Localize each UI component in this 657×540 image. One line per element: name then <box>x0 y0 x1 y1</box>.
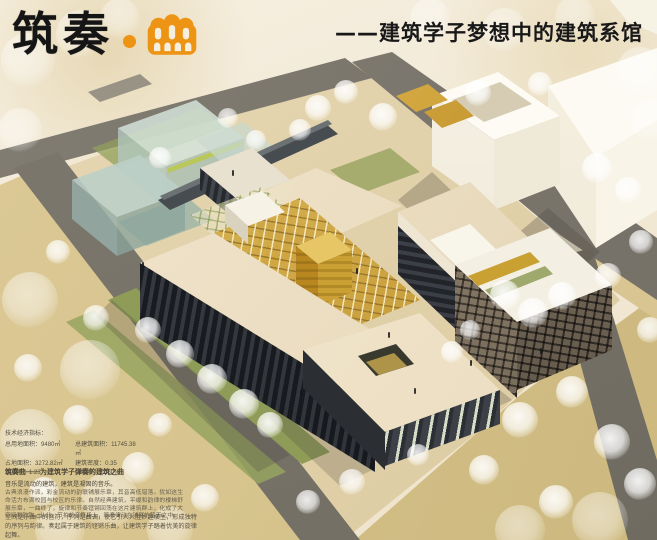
tree <box>518 298 548 328</box>
tree <box>148 413 172 437</box>
person-figure <box>300 390 302 396</box>
tree <box>572 492 628 540</box>
tree <box>135 317 161 343</box>
tree <box>615 177 641 203</box>
tree <box>46 240 70 264</box>
tree <box>624 468 656 500</box>
board-title-group: 筑奏 <box>12 10 199 58</box>
design-footnote: 空间是乐曲中的音符，序列是曲调，使它引人入胜妙趣横生，形成独特的序列与韵律。奏起… <box>5 514 197 540</box>
tree <box>556 376 588 408</box>
tree <box>595 263 621 289</box>
tree <box>495 505 545 540</box>
stat-floor-area: 总建筑面积：11745.38㎡ <box>75 441 139 460</box>
tree <box>149 147 171 169</box>
qu-logo-icon <box>145 10 199 58</box>
tree <box>528 72 552 96</box>
tree <box>369 103 397 131</box>
person-figure <box>470 360 472 366</box>
tree <box>14 354 42 382</box>
tree <box>218 108 238 128</box>
slogan-subtitle: 音乐是流动的建筑，建筑是凝固的音乐。 <box>5 479 124 488</box>
person-figure <box>142 262 144 268</box>
tree <box>460 320 480 340</box>
tree <box>617 47 657 93</box>
tree <box>305 95 331 121</box>
tree <box>339 469 365 495</box>
tree <box>594 424 630 460</box>
tree <box>539 485 573 519</box>
tree <box>289 119 311 141</box>
tree <box>334 80 358 104</box>
stats-heading: 技术经济指标： <box>5 430 139 440</box>
person-figure <box>356 268 358 274</box>
design-slogan: 筑奏曲——为建筑学子弹奏的建筑之曲 音乐是流动的建筑，建筑是凝固的音乐。 <box>5 467 124 488</box>
tree <box>465 80 491 106</box>
title-dot-separator <box>123 35 136 48</box>
tree <box>246 130 266 150</box>
tree <box>83 305 109 331</box>
person-figure <box>388 332 390 338</box>
tree <box>229 389 259 419</box>
person-figure <box>540 348 542 354</box>
tree <box>407 444 429 466</box>
tree <box>441 341 463 363</box>
person-figure <box>414 388 416 394</box>
tree <box>637 317 657 343</box>
person-figure <box>232 170 234 176</box>
tree <box>548 282 576 310</box>
tree <box>630 100 657 140</box>
board-title: 筑奏 <box>12 11 114 57</box>
tree <box>469 455 499 485</box>
tree <box>197 364 227 394</box>
tree <box>2 272 58 328</box>
tree <box>191 484 219 512</box>
stat-site-area: 总用地面积：9480㎡ <box>5 441 72 460</box>
presentation-board: 筑奏 ——建筑学子梦想中的建筑系馆 技术经济指标： 总用地面积：9480㎡ 总建… <box>0 0 657 540</box>
tree <box>60 340 120 400</box>
tree <box>582 153 612 183</box>
tree <box>166 340 194 368</box>
tree <box>502 402 538 438</box>
slogan-title: 筑奏曲——为建筑学子弹奏的建筑之曲 <box>5 467 124 477</box>
tree <box>490 280 520 310</box>
tree <box>296 490 320 514</box>
board-subtitle: ——建筑学子梦想中的建筑系馆 <box>335 17 643 47</box>
tree <box>629 230 653 254</box>
tree <box>257 412 283 438</box>
tree <box>0 108 42 152</box>
